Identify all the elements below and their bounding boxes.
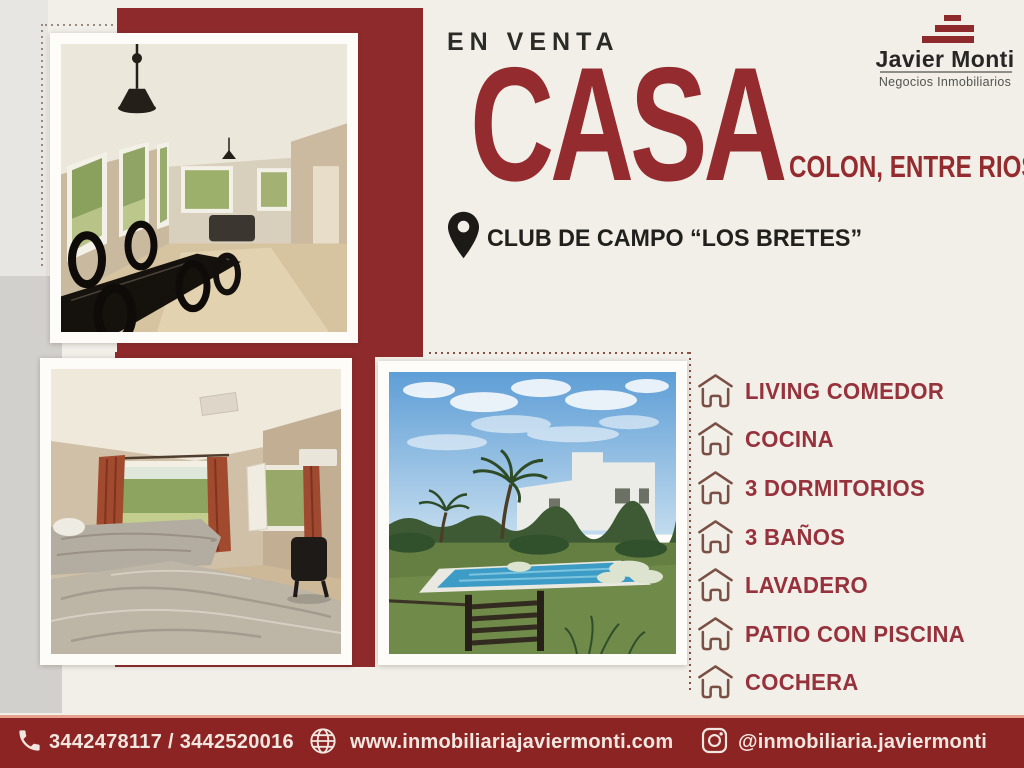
feature-label: COCHERA [745,669,859,696]
house-icon [696,470,735,507]
stairs-icon [944,15,961,21]
feature-list: LIVING COMEDOR COCINA 3 DORMITORIOS 3 BA… [696,367,974,707]
house-icon [696,519,735,556]
stairs-icon [922,36,974,43]
photo-pool-exterior [378,361,687,665]
house-icon [696,373,735,410]
feature-label: 3 BAÑOS [745,524,845,551]
dotted-line-pool-top [429,352,691,354]
dining-room-illustration [61,44,347,332]
house-icon [696,567,735,604]
feature-label: LIVING COMEDOR [745,378,944,405]
feature-label: LAVADERO [745,572,868,599]
real-estate-flyer: EN VENTA CASA COLON, ENTRE RIOS Javier M… [0,0,1024,768]
photo-dining-room [50,33,358,343]
feature-item: 3 BAÑOS [696,513,974,562]
feature-item: COCINA [696,416,974,465]
photo-bedroom [40,358,352,665]
house-icon [696,421,735,458]
feature-label: COCINA [745,426,834,453]
feature-label: 3 DORMITORIOS [745,475,925,502]
feature-item: LAVADERO [696,561,974,610]
feature-label: PATIO CON PISCINA [745,621,965,648]
stairs-icon [935,25,974,32]
feature-item: LIVING COMEDOR [696,367,974,416]
dotted-line-left-vertical [41,24,43,268]
bedroom-illustration [51,369,341,654]
pool-illustration [389,372,676,654]
map-pin-icon [448,211,479,259]
dotted-line-left-horizontal [45,24,119,26]
phone-numbers[interactable]: 3442478117 / 3442520016 [49,731,294,754]
listing-title: CASA [470,44,783,206]
instagram-handle[interactable]: @inmobiliaria.javiermonti [738,731,987,754]
dotted-line-pool-right [689,352,691,690]
listing-city: COLON, ENTRE RIOS [789,149,1024,185]
feature-item: PATIO CON PISCINA [696,610,974,659]
globe-icon [309,727,337,755]
brand-name: Javier Monti [870,46,1020,73]
feature-item: COCHERA [696,659,974,708]
feature-item: 3 DORMITORIOS [696,464,974,513]
house-icon [696,664,735,701]
website-url[interactable]: www.inmobiliariajaviermonti.com [350,731,673,754]
brand-divider [880,71,1012,73]
instagram-icon [700,726,729,755]
brand-tagline: Negocios Inmobiliarios [870,75,1020,89]
house-icon [696,616,735,653]
location-label: CLUB DE CAMPO “LOS BRETES” [487,225,862,253]
phone-icon [16,727,43,754]
